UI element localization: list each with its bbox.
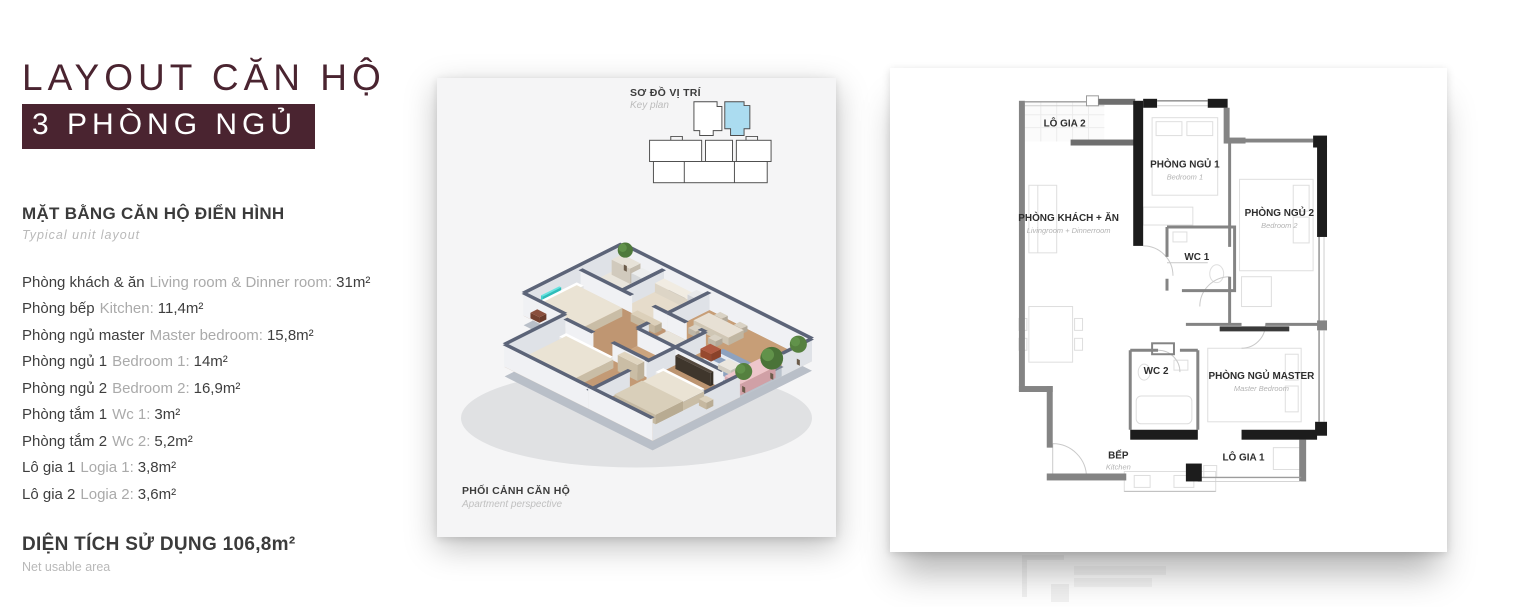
watermark-text-lines (1074, 563, 1192, 590)
title-badge: 3 PHÒNG NGỦ (22, 104, 315, 149)
room-name-en: Wc 2: (112, 433, 150, 450)
room-spec-row: Phòng tắm 2Wc 2:5,2m² (22, 429, 422, 456)
watermark (1022, 550, 1192, 602)
room-spec-row: Phòng ngủ 2Bedroom 2:16,9m² (22, 376, 422, 403)
room-label: PHÒNG NGỦ 1 (1150, 158, 1220, 170)
left-info-panel: LAYOUT CĂN HỘ 3 PHÒNG NGỦ MẶT BẰNG CĂN H… (22, 58, 422, 574)
room-name-en: Bedroom 2: (112, 380, 190, 397)
room-area: 5,2m² (154, 433, 192, 450)
room-spec-row: Phòng ngủ masterMaster bedroom:15,8m² (22, 323, 422, 350)
page: LAYOUT CĂN HỘ 3 PHÒNG NGỦ MẶT BẰNG CĂN H… (0, 0, 1536, 607)
room-label: LÔ GIA 1 (1222, 452, 1265, 464)
perspective-card: SƠ ĐỒ VỊ TRÍ Key plan PHỐI CẢNH CĂN HỘ A… (437, 78, 836, 537)
plan-labels: LÔ GIA 2 PHÒNG NGỦ 1 Bedroom 1 PHÒNG KHÁ… (1018, 118, 1314, 472)
room-name-vi: Phòng bếp (22, 300, 95, 317)
room-area: 15,8m² (267, 327, 314, 344)
room-name-vi: Phòng ngủ 1 (22, 353, 107, 370)
perspective-caption-title: PHỐI CẢNH CĂN HỘ (462, 485, 570, 497)
room-name-vi: Phòng ngủ 2 (22, 380, 107, 397)
room-sublabel: Kitchen (1106, 463, 1131, 472)
room-spec-row: Lô gia 1Logia 1:3,8m² (22, 455, 422, 482)
room-name-vi: Phòng ngủ master (22, 327, 145, 344)
room-name-en: Living room & Dinner room: (150, 274, 333, 291)
specs-heading: MẶT BẰNG CĂN HỘ ĐIỂN HÌNH (22, 204, 422, 224)
room-area: 3,6m² (138, 486, 176, 503)
room-label: WC 1 (1184, 252, 1209, 263)
apartment-3d-view (439, 200, 834, 532)
key-plan-highlight (725, 102, 750, 136)
room-sublabel: Livingroom + Dinnerroom (1027, 226, 1111, 235)
room-spec-list: Phòng khách & ănLiving room & Dinner roo… (22, 270, 422, 509)
room-spec-row: Phòng ngủ 1Bedroom 1:14m² (22, 349, 422, 376)
room-area: 3m² (154, 406, 180, 423)
room-label: PHÒNG NGỦ MASTER (1209, 370, 1315, 382)
perspective-caption-sub: Apartment perspective (462, 499, 570, 510)
key-plan-diagram (640, 94, 798, 202)
room-sublabel: Bedroom 1 (1167, 172, 1203, 181)
perspective-caption: PHỐI CẢNH CĂN HỘ Apartment perspective (462, 485, 570, 510)
room-sublabel: Master Bedroom (1234, 384, 1289, 393)
room-area: 11,4m² (158, 300, 204, 317)
specs-subheading: Typical unit layout (22, 228, 422, 242)
room-label: LÔ GIA 2 (1044, 118, 1087, 130)
room-label: BẾP (1108, 451, 1129, 462)
room-label: PHÒNG NGỦ 2 (1245, 207, 1315, 219)
room-spec-row: Lô gia 2Logia 2:3,6m² (22, 482, 422, 509)
room-name-en: Bedroom 1: (112, 353, 190, 370)
room-spec-row: Phòng bếpKitchen:11,4m² (22, 296, 422, 323)
room-spec-row: Phòng khách & ănLiving room & Dinner roo… (22, 270, 422, 297)
room-name-vi: Lô gia 2 (22, 486, 75, 503)
room-name-en: Master bedroom: (150, 327, 263, 344)
room-area: 3,8m² (138, 459, 176, 476)
room-area: 16,9m² (194, 380, 241, 397)
room-name-en: Wc 1: (112, 406, 150, 423)
room-name-vi: Phòng khách & ăn (22, 274, 145, 291)
room-name-en: Logia 1: (80, 459, 133, 476)
room-name-en: Kitchen: (100, 300, 154, 317)
room-name-en: Logia 2: (80, 486, 133, 503)
room-name-vi: Phòng tắm 2 (22, 433, 107, 450)
room-name-vi: Lô gia 1 (22, 459, 75, 476)
room-area: 31m² (336, 274, 370, 291)
floor-plan-card: LÔ GIA 2 PHÒNG NGỦ 1 Bedroom 1 PHÒNG KHÁ… (890, 68, 1447, 552)
page-title: LAYOUT CĂN HỘ (22, 58, 422, 99)
room-label: WC 2 (1144, 366, 1169, 377)
room-sublabel: Bedroom 2 (1261, 221, 1298, 230)
room-spec-row: Phòng tắm 1Wc 1:3m² (22, 402, 422, 429)
floor-plan-2d: LÔ GIA 2 PHÒNG NGỦ 1 Bedroom 1 PHÒNG KHÁ… (890, 68, 1447, 552)
watermark-logo-icon (1022, 555, 1064, 597)
total-usable-area: DIỆN TÍCH SỬ DỤNG 106,8m² (22, 534, 422, 556)
total-usable-area-sub: Net usable area (22, 560, 422, 574)
room-label: PHÒNG KHÁCH + ĂN (1018, 212, 1119, 224)
key-plan-unit (694, 102, 722, 136)
room-area: 14m² (194, 353, 228, 370)
room-name-vi: Phòng tắm 1 (22, 406, 107, 423)
